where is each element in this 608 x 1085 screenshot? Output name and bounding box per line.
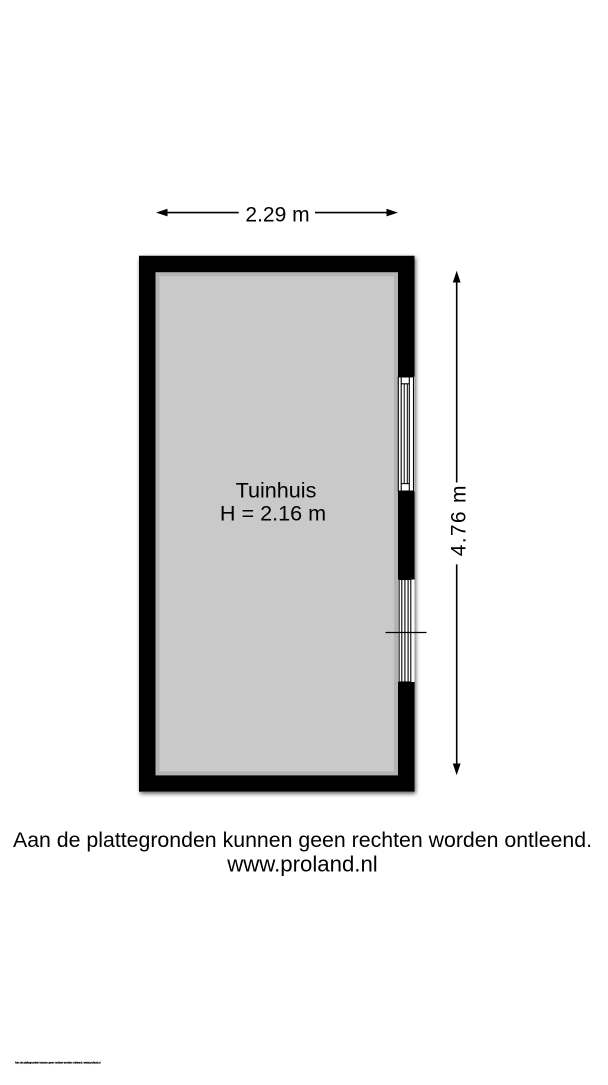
svg-text:Tuinhuis: Tuinhuis — [236, 478, 317, 503]
svg-text:www.proland.nl: www.proland.nl — [226, 851, 377, 876]
svg-text:H = 2.16 m: H = 2.16 m — [220, 501, 326, 526]
svg-text:Aan de plattegronden kunnen ge: Aan de plattegronden kunnen geen rechten… — [15, 1062, 101, 1065]
svg-text:2.29 m: 2.29 m — [245, 203, 309, 226]
svg-text:4.76 m: 4.76 m — [448, 484, 471, 556]
svg-text:Aan de plattegronden kunnen ge: Aan de plattegronden kunnen geen rechten… — [13, 828, 592, 852]
